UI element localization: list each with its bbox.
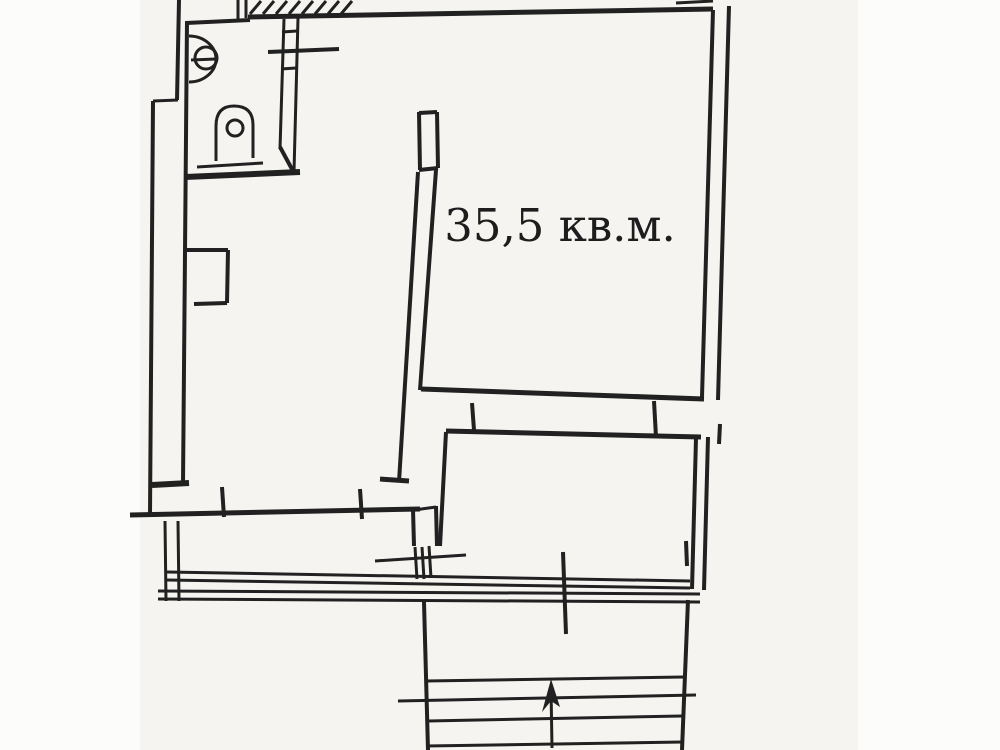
floor-plan-drawing: 35,5 кв.м. <box>0 0 1000 750</box>
left-room-corner-stub <box>152 483 189 485</box>
window-jamb-left <box>413 509 414 546</box>
window-jamb-right <box>436 506 437 546</box>
scan-paper-background <box>140 0 858 750</box>
window-hatch-2 <box>422 547 424 579</box>
opening-jamb-tick-2 <box>654 401 656 437</box>
radiator-right <box>227 250 228 303</box>
corridor-jamb-tick-2 <box>360 489 362 519</box>
scanned-floor-plan-page: 35,5 кв.м. <box>0 0 1000 750</box>
opening-jamb-tick-1 <box>472 403 474 430</box>
middle-wall-cap-divider <box>419 168 438 170</box>
window-hatch-1 <box>415 547 417 579</box>
bathroom-wall-rung-1 <box>282 31 297 32</box>
corridor-jamb-tick-1 <box>222 487 224 517</box>
right-outer-fragment <box>719 424 720 444</box>
left-room-bottom-stub-right <box>380 479 409 481</box>
radiator-bottom <box>194 303 227 304</box>
left-wall-jog <box>153 100 178 101</box>
middle-wall-cap-right <box>437 112 438 168</box>
bathroom-wall-rung-2 <box>281 68 296 69</box>
area-label: 35,5 кв.м. <box>444 199 676 252</box>
balcony-left-wall-b <box>178 521 179 601</box>
left-wall-outer-top <box>177 0 179 100</box>
balcony-right-tick <box>686 541 687 566</box>
window-hatch-3 <box>429 546 431 578</box>
top-right-stub <box>676 1 713 3</box>
middle-wall-cap-left <box>419 112 420 170</box>
balcony-left-wall-a <box>165 521 166 601</box>
middle-wall-cap-top <box>419 112 437 113</box>
